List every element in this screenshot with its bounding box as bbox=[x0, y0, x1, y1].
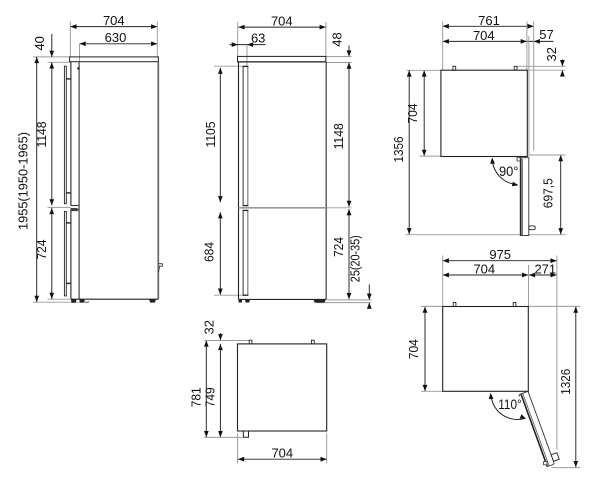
svg-text:25(20-35): 25(20-35) bbox=[348, 235, 363, 282]
svg-text:704: 704 bbox=[271, 445, 293, 460]
svg-text:704: 704 bbox=[271, 14, 293, 29]
svg-text:1105: 1105 bbox=[203, 122, 218, 148]
svg-text:1148: 1148 bbox=[34, 122, 49, 148]
svg-text:975: 975 bbox=[489, 247, 511, 262]
svg-text:1326: 1326 bbox=[558, 369, 573, 395]
svg-text:63: 63 bbox=[251, 31, 265, 46]
svg-text:57: 57 bbox=[539, 27, 553, 42]
svg-text:1955(1950-1965): 1955(1950-1965) bbox=[16, 132, 31, 230]
svg-text:724: 724 bbox=[34, 240, 49, 260]
svg-text:697,5: 697,5 bbox=[540, 178, 555, 208]
svg-text:704: 704 bbox=[405, 104, 420, 124]
svg-text:110°: 110° bbox=[498, 397, 522, 412]
svg-text:32: 32 bbox=[544, 47, 559, 61]
svg-text:271: 271 bbox=[534, 261, 556, 276]
svg-text:32: 32 bbox=[202, 320, 217, 334]
svg-text:630: 630 bbox=[105, 30, 127, 45]
svg-text:704: 704 bbox=[103, 13, 125, 28]
svg-text:704: 704 bbox=[473, 28, 495, 43]
svg-text:724: 724 bbox=[331, 237, 346, 257]
svg-text:761: 761 bbox=[478, 13, 500, 28]
svg-text:704: 704 bbox=[406, 339, 421, 359]
svg-text:704: 704 bbox=[473, 261, 495, 276]
svg-text:749: 749 bbox=[202, 387, 217, 407]
svg-text:1148: 1148 bbox=[331, 123, 346, 149]
svg-text:684: 684 bbox=[201, 242, 216, 262]
svg-text:90°: 90° bbox=[499, 164, 519, 179]
svg-text:781: 781 bbox=[188, 387, 203, 407]
svg-text:1356: 1356 bbox=[391, 137, 406, 163]
svg-text:40: 40 bbox=[32, 36, 47, 50]
svg-text:48: 48 bbox=[330, 32, 345, 46]
